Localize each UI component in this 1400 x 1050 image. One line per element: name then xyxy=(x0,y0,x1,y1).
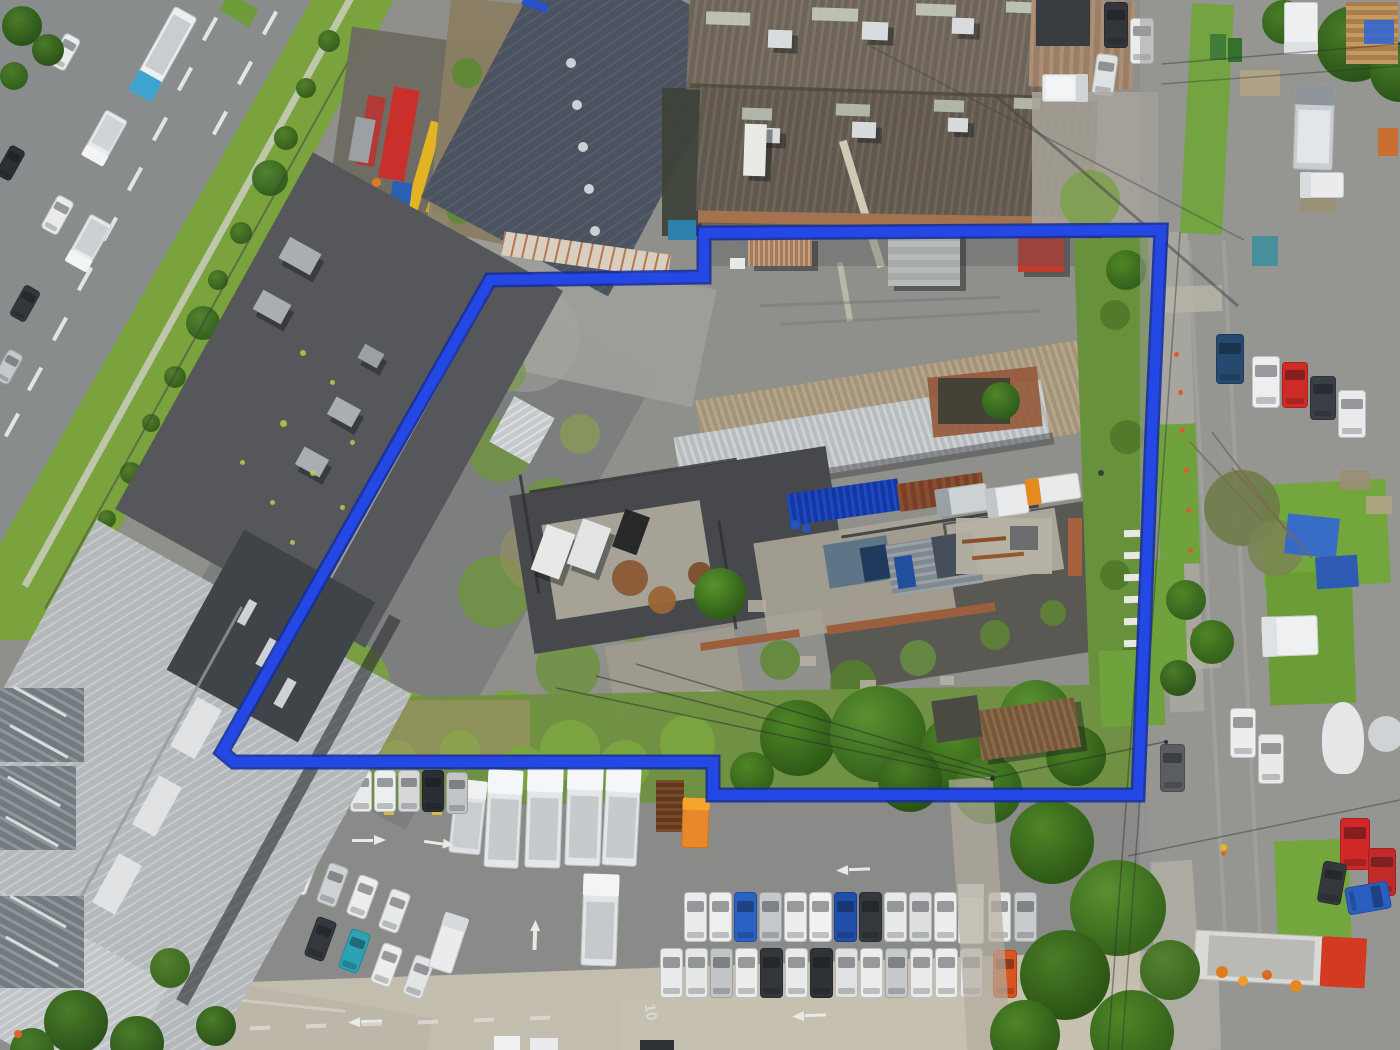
car xyxy=(734,892,757,942)
car xyxy=(1252,356,1280,408)
rust-debris xyxy=(612,560,648,596)
bush xyxy=(296,78,316,98)
lichen xyxy=(290,540,295,545)
car xyxy=(759,892,782,942)
ac-unit xyxy=(862,22,889,41)
traffic-cone xyxy=(1186,508,1191,513)
white-van xyxy=(1284,2,1318,54)
tree xyxy=(878,748,942,812)
hedge xyxy=(1160,660,1196,696)
orange-junk xyxy=(1290,980,1302,992)
crane-truck xyxy=(984,483,1030,519)
lichen xyxy=(280,420,287,427)
traffic-cone xyxy=(1178,390,1183,395)
car xyxy=(784,892,807,942)
bush xyxy=(274,126,298,150)
ac-unit xyxy=(768,30,793,49)
alley-shadow xyxy=(662,88,702,236)
car xyxy=(810,948,833,998)
car xyxy=(809,892,832,942)
wheel-stop xyxy=(384,812,394,815)
boat xyxy=(1322,702,1364,774)
car xyxy=(935,948,958,998)
white-post xyxy=(1124,530,1140,538)
car xyxy=(398,770,420,812)
lichen xyxy=(240,460,245,465)
neighbor-lawn xyxy=(1060,170,1120,230)
car xyxy=(1104,2,1128,48)
white-post xyxy=(1124,552,1140,560)
orange-junk xyxy=(1238,976,1248,986)
truck-cab-partial xyxy=(530,1038,558,1050)
dark-shed xyxy=(931,695,982,743)
hedge xyxy=(1190,620,1234,664)
car xyxy=(859,892,882,942)
road-arrow xyxy=(836,863,870,875)
brick-wall xyxy=(1068,518,1082,576)
car xyxy=(1282,362,1308,408)
road-arrow xyxy=(352,835,386,846)
skylight xyxy=(812,7,858,22)
junk-pile xyxy=(1366,496,1392,514)
car xyxy=(1216,334,1244,384)
rubble xyxy=(940,676,954,685)
car xyxy=(1340,818,1370,870)
car xyxy=(885,948,908,998)
aerial-site-photo: Aerial drone photograph of an industrial… xyxy=(0,0,1400,1050)
white-post xyxy=(1124,596,1140,604)
car xyxy=(1160,744,1185,792)
grass-tuft xyxy=(440,730,480,770)
tree xyxy=(730,752,774,796)
orange-junk xyxy=(1262,970,1272,980)
traffic-cone xyxy=(1184,468,1189,473)
tree xyxy=(0,62,28,90)
traffic-cone xyxy=(1188,548,1193,553)
car xyxy=(1338,390,1366,438)
dump-truck xyxy=(580,873,619,966)
grass-tuft xyxy=(660,715,715,770)
lichen xyxy=(300,350,306,356)
car xyxy=(785,948,808,998)
ac-unit xyxy=(852,122,877,139)
roof-vent xyxy=(578,142,588,152)
car xyxy=(422,770,444,812)
center-dash xyxy=(362,1022,382,1027)
car xyxy=(910,948,933,998)
dump-truck xyxy=(524,767,563,868)
road-arrow xyxy=(529,920,540,950)
worker-hivis xyxy=(1221,851,1226,856)
street-tree xyxy=(1140,940,1200,1000)
power-pole xyxy=(990,776,995,781)
weeds xyxy=(900,640,936,676)
white-box xyxy=(730,258,745,269)
grass-shade xyxy=(1100,300,1130,330)
lone-tree xyxy=(694,568,746,620)
center-dash xyxy=(418,1020,438,1025)
dump-truck xyxy=(601,767,641,867)
dumpster xyxy=(656,780,684,832)
blue-tarp xyxy=(1284,513,1340,558)
car xyxy=(684,892,707,942)
wheel-stop xyxy=(432,812,442,815)
ac-unit xyxy=(948,118,968,133)
pallet-junk xyxy=(1240,70,1280,96)
car xyxy=(934,892,957,942)
junk-pile xyxy=(1340,470,1370,490)
white-post xyxy=(1124,618,1140,626)
blue-tarp xyxy=(1315,555,1359,590)
driveway-crossing xyxy=(1162,285,1223,313)
car xyxy=(760,948,783,998)
sign-board xyxy=(743,124,767,177)
white-van xyxy=(1261,615,1318,657)
verge-grass xyxy=(1156,423,1201,564)
weeds xyxy=(980,620,1010,650)
car xyxy=(446,772,468,814)
tanker-truck xyxy=(1293,83,1336,170)
car xyxy=(735,948,758,998)
white-post xyxy=(1124,640,1140,648)
scrub xyxy=(452,58,482,88)
car xyxy=(1230,708,1256,758)
car xyxy=(710,948,733,998)
lichen xyxy=(310,470,316,476)
white-post xyxy=(1124,574,1140,582)
grass-shade xyxy=(1110,420,1144,454)
weed-patch xyxy=(560,414,600,454)
roof-vent xyxy=(572,100,582,110)
rubble xyxy=(800,656,816,666)
car xyxy=(660,948,683,998)
round-tank xyxy=(1368,716,1400,752)
orange-machine xyxy=(1378,128,1398,156)
lichen xyxy=(270,500,275,505)
dump-truck xyxy=(564,765,603,866)
skylight xyxy=(916,3,956,16)
car xyxy=(374,770,396,812)
weeds xyxy=(1040,600,1066,626)
flatbed-truck xyxy=(1193,930,1367,989)
traffic-cone xyxy=(1180,428,1185,433)
rust-debris xyxy=(648,586,676,614)
rusty-container xyxy=(748,236,812,266)
car xyxy=(1258,734,1284,784)
orange-junk xyxy=(1216,966,1228,978)
roof-vent xyxy=(584,184,594,194)
car xyxy=(1014,892,1037,942)
truck-cab-partial xyxy=(494,1036,520,1050)
courtyard-tree xyxy=(982,382,1020,420)
tree xyxy=(196,1006,236,1046)
lichen xyxy=(340,505,345,510)
blue-tarp xyxy=(1364,20,1394,44)
car-roof-partial xyxy=(640,1040,674,1050)
center-dash xyxy=(250,1026,270,1031)
traffic-cone xyxy=(14,1030,22,1038)
skylight xyxy=(934,99,964,112)
road-marking-10: 10 xyxy=(639,996,663,1028)
power-pole xyxy=(1098,470,1104,476)
lawn xyxy=(1099,649,1166,727)
center-dash xyxy=(530,1016,550,1021)
car xyxy=(1310,376,1336,420)
box-truck xyxy=(1042,74,1088,102)
teal-canopy xyxy=(668,220,696,240)
roof-vent xyxy=(590,226,600,236)
road-arrow xyxy=(792,1009,826,1021)
blue-drum xyxy=(790,520,800,530)
traffic-cone xyxy=(1174,352,1179,357)
lichen xyxy=(350,440,355,445)
worker-hivis xyxy=(1220,844,1227,851)
car xyxy=(834,892,857,942)
street-tree xyxy=(1010,800,1094,884)
car xyxy=(835,948,858,998)
green-bin xyxy=(1228,38,1242,62)
tree xyxy=(44,990,108,1050)
car xyxy=(685,948,708,998)
car xyxy=(709,892,732,942)
dump-truck xyxy=(483,769,523,869)
blue-drum xyxy=(802,524,811,533)
center-dash xyxy=(306,1024,326,1029)
roof-vent xyxy=(566,58,576,68)
skylight xyxy=(836,103,870,116)
hedge xyxy=(1166,580,1206,620)
lichen xyxy=(370,480,374,484)
bush xyxy=(318,30,340,52)
rubble xyxy=(748,600,766,612)
orange-truck xyxy=(681,798,710,849)
center-dash xyxy=(474,1018,494,1023)
green-bin xyxy=(1210,34,1226,60)
ac-unit xyxy=(952,18,975,35)
tree xyxy=(32,34,64,66)
car xyxy=(860,948,883,998)
lichen xyxy=(330,380,335,385)
tree xyxy=(150,948,190,988)
gravel-pit xyxy=(1010,526,1038,550)
car xyxy=(884,892,907,942)
power-pole xyxy=(1164,740,1168,744)
machinery-navy xyxy=(860,544,891,582)
skylight xyxy=(706,11,750,26)
skylight xyxy=(742,107,772,120)
teal-junk xyxy=(1252,236,1278,266)
white-ute xyxy=(1300,172,1344,198)
weeds xyxy=(760,640,800,680)
car xyxy=(909,892,932,942)
grey-shed xyxy=(888,228,960,286)
rooftop-plant xyxy=(1036,0,1090,46)
